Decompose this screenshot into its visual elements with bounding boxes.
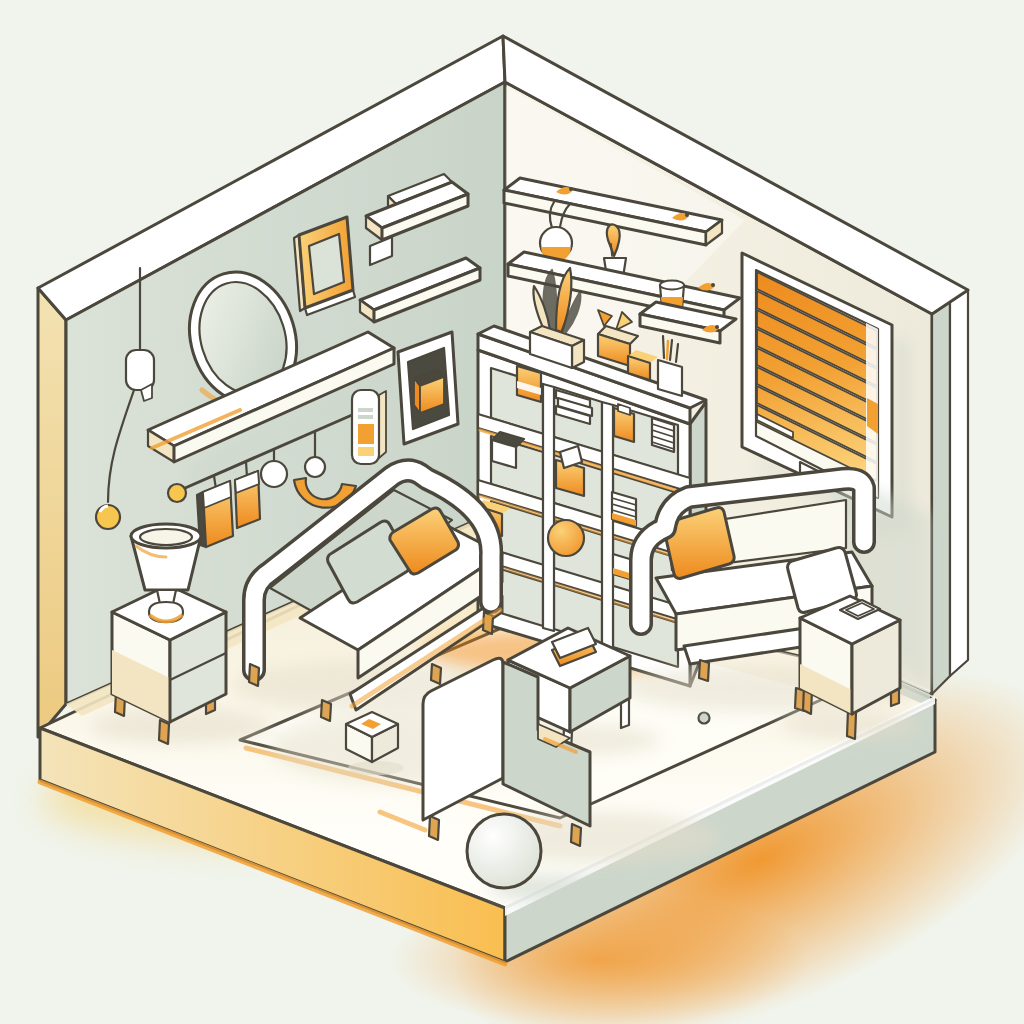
cube-shadow <box>348 761 404 775</box>
left-wall-outer-edge <box>38 288 66 737</box>
switch-slot-2 <box>358 415 373 419</box>
orange-cup-rim <box>660 281 684 290</box>
isometric-living-room-illustration <box>0 0 1024 1024</box>
orange-pencil <box>667 341 668 359</box>
sofa-leg <box>249 664 259 686</box>
planter-side <box>572 340 584 368</box>
sofa-leg <box>431 664 441 684</box>
right-wall-outer-strip <box>950 290 968 676</box>
rug-dot <box>699 713 710 724</box>
right-wall-edge-band <box>932 302 950 694</box>
nightstand-leg <box>159 720 169 744</box>
unit-divider <box>602 402 613 649</box>
orange-sphere <box>548 520 584 556</box>
frame-inner <box>309 234 344 294</box>
armchair-leg <box>429 816 439 840</box>
hanging-ball <box>96 505 120 529</box>
wall-switch-panel <box>352 390 386 464</box>
switch-orange-block <box>358 424 374 444</box>
leaf-stem <box>611 244 612 256</box>
armchair-leg <box>571 824 581 846</box>
hanging-ball-large <box>261 461 287 487</box>
switch-orange-block-2 <box>358 447 374 456</box>
striped-roll <box>652 418 674 452</box>
shade-opening <box>140 529 192 545</box>
switch-slot-1 <box>358 408 373 412</box>
pencil-cup <box>658 360 682 396</box>
scene-canvas <box>0 0 1024 1024</box>
unit-divider <box>543 384 554 631</box>
rail-knob-yellow <box>168 484 186 502</box>
wall-sconce <box>126 350 154 390</box>
sphere <box>467 814 541 888</box>
sofa-leg <box>321 700 331 721</box>
shadow-box <box>398 332 458 444</box>
hanging-ball-small <box>305 457 325 477</box>
sofa-leg <box>699 660 709 681</box>
